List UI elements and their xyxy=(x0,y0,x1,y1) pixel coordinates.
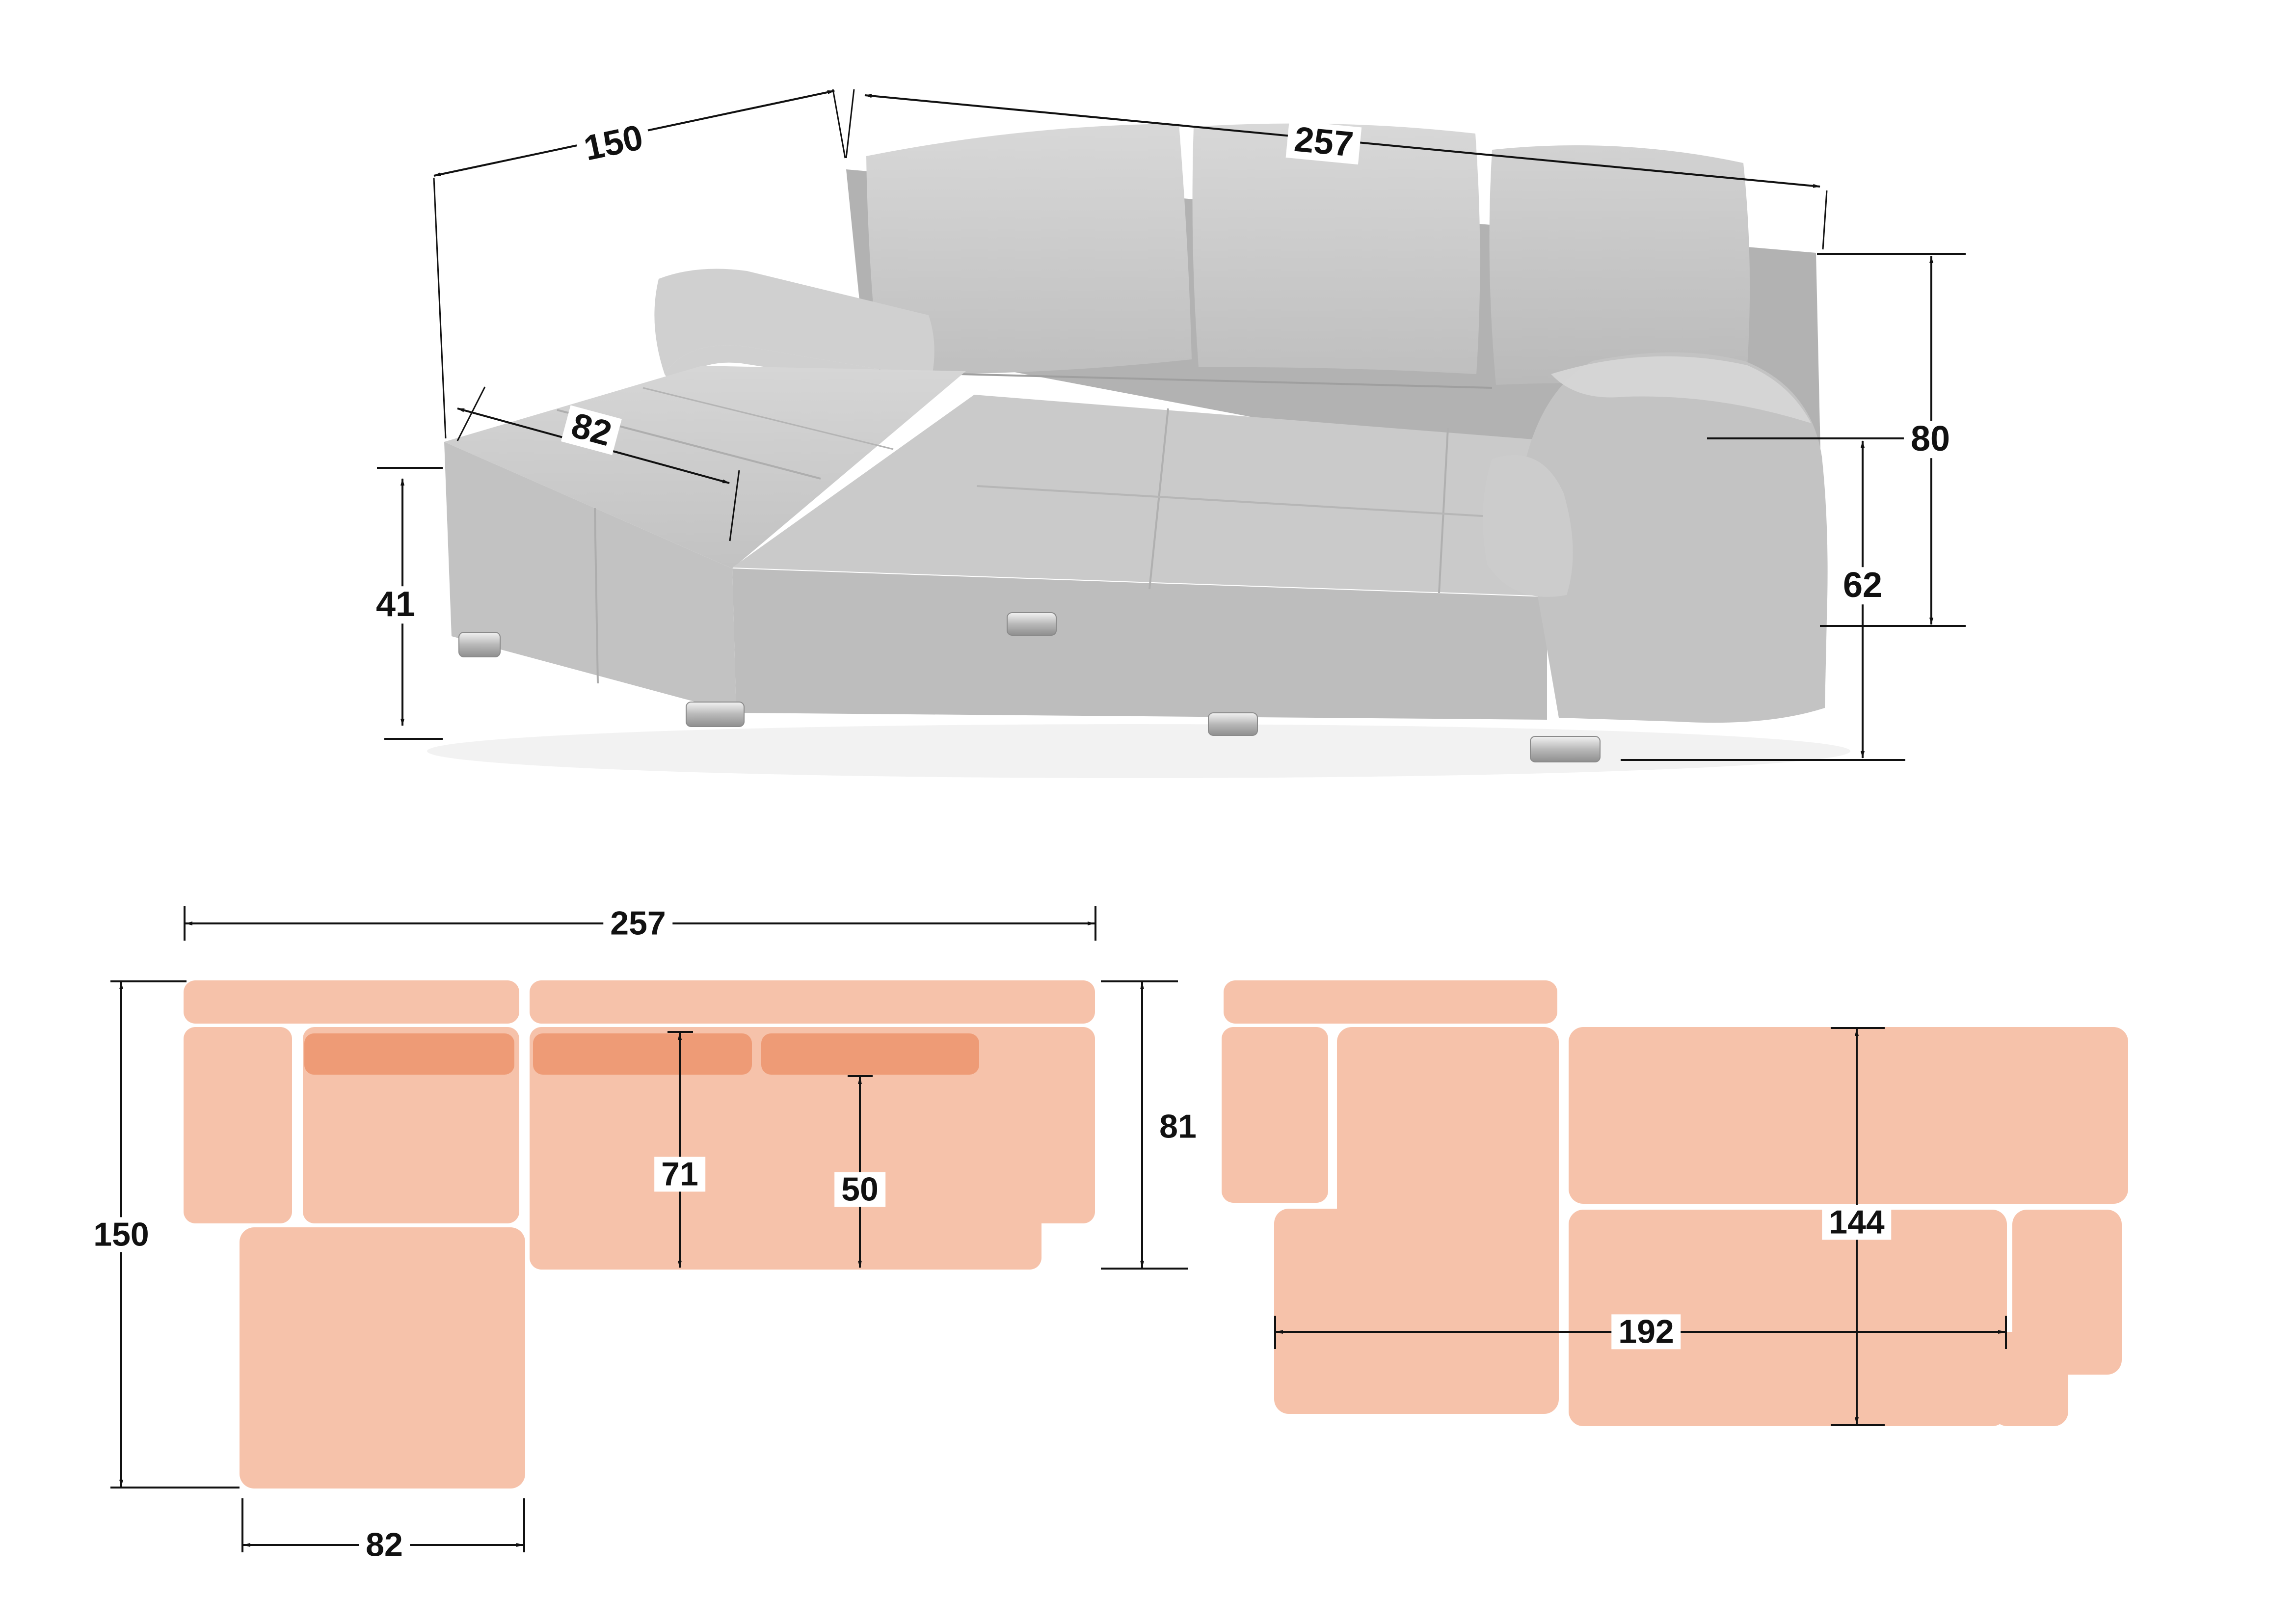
dim-photo-back-height: 80 xyxy=(1904,421,1957,458)
dim-photo-arm-height: 62 xyxy=(1836,567,1889,604)
dim-photo-chaise-length: 150 xyxy=(574,118,653,169)
chaise-arm-bolster xyxy=(654,269,934,378)
bed-armrest-right xyxy=(2012,1210,2122,1375)
dim-plan-seat-depth-full: 71 xyxy=(654,1157,705,1191)
sofa-foot xyxy=(686,702,744,727)
back-cushion-right xyxy=(1490,145,1750,393)
sofa-foot xyxy=(1007,613,1056,635)
sofa-foot xyxy=(1208,713,1257,735)
back-cushion-left xyxy=(866,124,1192,374)
dim-plan-chaise-width: 82 xyxy=(359,1527,410,1562)
plan-armrest-right xyxy=(986,1027,1095,1223)
seat-top xyxy=(732,395,1601,596)
floor-shadow xyxy=(427,724,1850,778)
sofa-foot xyxy=(1530,736,1600,762)
dim-bed-length: 192 xyxy=(1611,1314,1681,1349)
plan-chaise xyxy=(240,1227,525,1489)
dim-plan-seat-depth-cushion: 50 xyxy=(834,1172,885,1207)
sofa-back-panel xyxy=(846,169,1823,560)
plan-armrest-left xyxy=(184,1027,292,1223)
dim-plan-total-depth: 150 xyxy=(86,1217,156,1252)
plan-backrest-right xyxy=(530,980,1095,1024)
chaise-seat-top xyxy=(444,366,966,568)
dim-photo-chaise-seat-width: 82 xyxy=(561,406,622,455)
dim-photo-total-width: 257 xyxy=(1286,120,1362,164)
sofa-base-front xyxy=(732,568,1547,720)
bed-armrest-left xyxy=(1222,1027,1328,1203)
bed-backrest xyxy=(1224,980,1557,1024)
dim-bed-width: 144 xyxy=(1822,1205,1891,1240)
dim-photo-seat-height: 41 xyxy=(369,586,422,623)
bed-back-section xyxy=(1569,1027,2128,1204)
dim-plan-total-width: 257 xyxy=(603,906,672,941)
dim-plan-overall-depth: 81 xyxy=(1152,1109,1203,1144)
plan-seat-cushion-3 xyxy=(761,1033,979,1075)
right-armrest xyxy=(1519,352,1828,723)
plan-backrest-left xyxy=(184,980,519,1024)
sofa-foot xyxy=(459,632,500,657)
bed-chaise-extension xyxy=(1274,1209,1421,1414)
dimension-diagram-page: { "dimensions": { "photo": { "chaise_len… xyxy=(0,0,2296,1624)
plan-seat-cushion-2 xyxy=(533,1033,752,1075)
right-armrest-front xyxy=(1483,455,1573,597)
plan-seat-cushion-1 xyxy=(304,1033,514,1075)
chaise-front xyxy=(444,442,736,713)
